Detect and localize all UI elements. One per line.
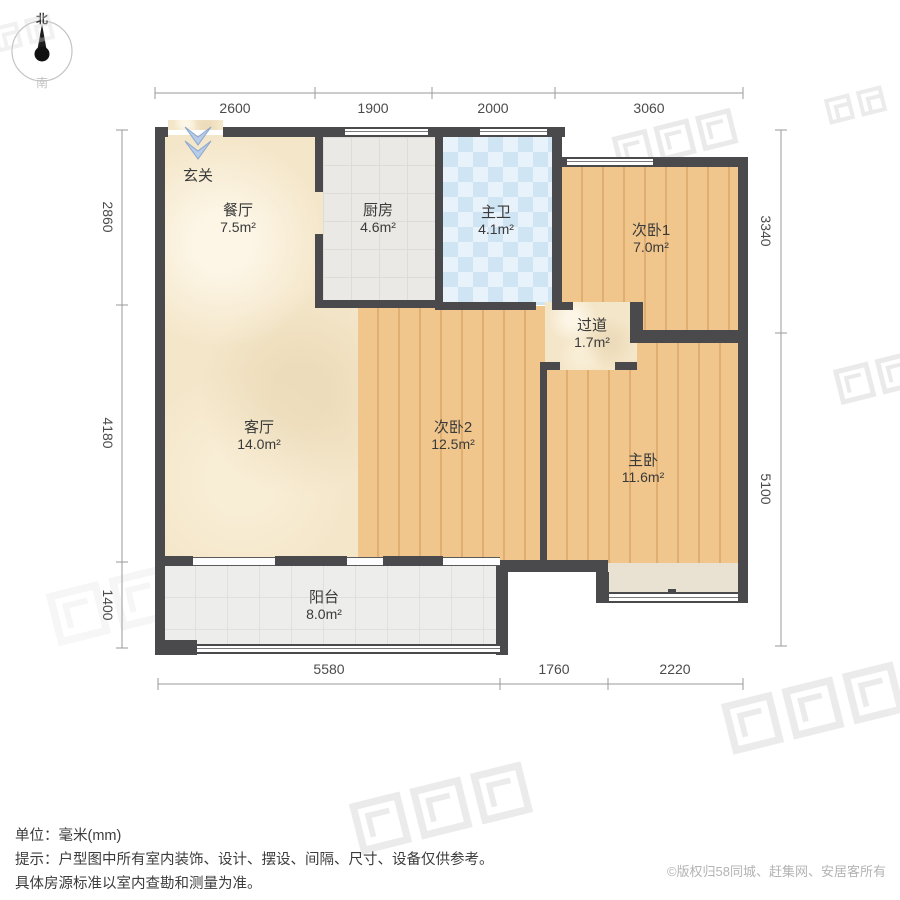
dim-bottom-2: 1760 bbox=[538, 661, 569, 677]
tip-note-line2: 具体房源标准以室内查勘和测量为准。 bbox=[15, 872, 262, 893]
tip-note-line1: 提示：户型图中所有室内装饰、设计、摆设、间隔、尺寸、设备仅供参考。 bbox=[15, 848, 494, 869]
dim-bottom-3: 2220 bbox=[659, 661, 690, 677]
copyright-note: ©版权归58同城、赶集网、安居客所有 bbox=[667, 861, 886, 880]
dim-right-2: 5100 bbox=[758, 473, 774, 504]
dimension-lines bbox=[0, 0, 900, 900]
dim-left-2: 4180 bbox=[100, 417, 116, 448]
dim-top-2: 1900 bbox=[357, 100, 388, 116]
unit-note: 单位：毫米(mm) bbox=[15, 824, 121, 845]
dim-left-3: 1400 bbox=[100, 589, 116, 620]
dim-bottom-1: 5580 bbox=[313, 661, 344, 677]
dim-top-1: 2600 bbox=[219, 100, 250, 116]
dim-top-4: 3060 bbox=[633, 100, 664, 116]
floorplan-page: { "compass": { "north": "北", "south": "南… bbox=[0, 0, 900, 900]
dim-top-3: 2000 bbox=[477, 100, 508, 116]
dim-left-1: 2860 bbox=[100, 201, 116, 232]
dim-right-1: 3340 bbox=[758, 215, 774, 246]
